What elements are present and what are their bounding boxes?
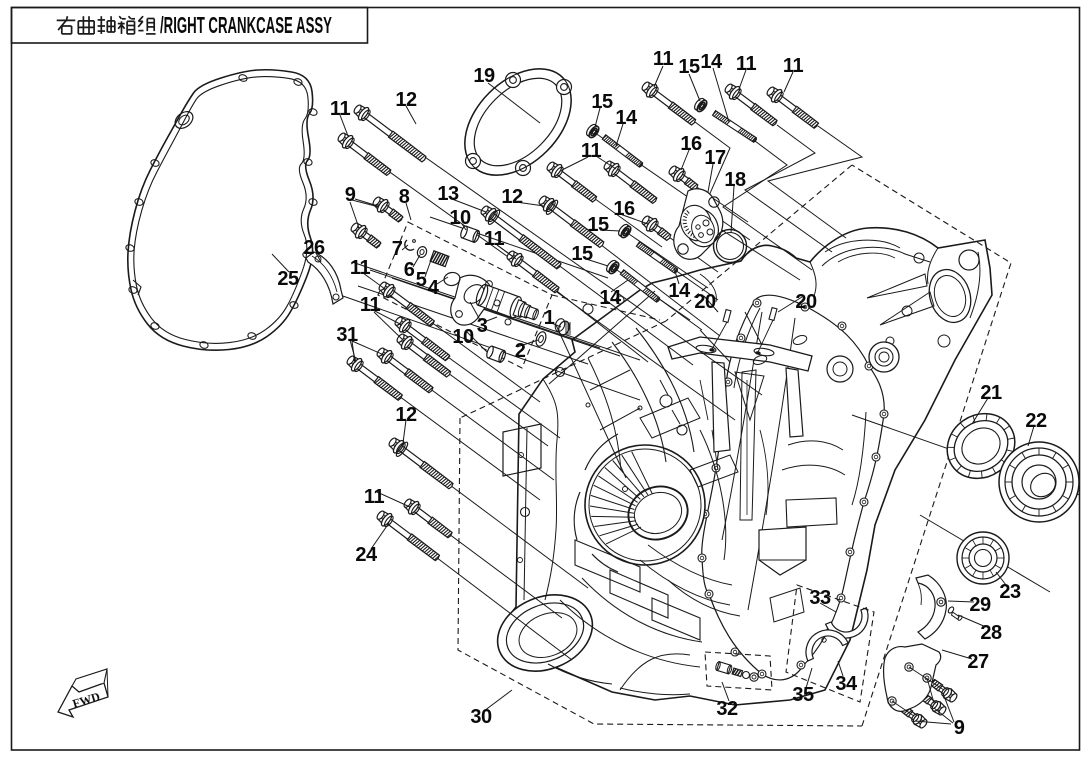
- svg-text:18: 18: [724, 169, 746, 191]
- svg-text:22: 22: [1025, 410, 1047, 432]
- svg-text:25: 25: [277, 268, 299, 290]
- svg-text:30: 30: [470, 706, 492, 728]
- svg-text:29: 29: [969, 594, 991, 616]
- svg-text:6: 6: [404, 259, 415, 281]
- svg-text:20: 20: [795, 291, 817, 313]
- svg-text:20: 20: [694, 291, 716, 313]
- svg-text:3: 3: [477, 315, 488, 337]
- svg-text:15: 15: [571, 243, 593, 265]
- svg-text:15: 15: [678, 56, 700, 78]
- svg-text:2: 2: [515, 340, 526, 362]
- svg-text:11: 11: [350, 257, 371, 279]
- svg-text:11: 11: [653, 48, 674, 70]
- svg-text:15: 15: [591, 91, 613, 113]
- svg-text:12: 12: [395, 89, 417, 111]
- svg-text:11: 11: [484, 228, 505, 250]
- svg-text:17: 17: [704, 147, 726, 169]
- svg-text:9: 9: [954, 717, 965, 739]
- svg-text:11: 11: [330, 98, 351, 120]
- svg-text:34: 34: [835, 673, 858, 695]
- svg-text:5: 5: [416, 269, 427, 291]
- svg-text:33: 33: [809, 587, 831, 609]
- svg-text:12: 12: [501, 186, 523, 208]
- svg-text:27: 27: [967, 651, 989, 673]
- svg-text:32: 32: [716, 698, 738, 720]
- svg-text:15: 15: [587, 214, 609, 236]
- svg-text:35: 35: [792, 684, 814, 706]
- svg-text:13: 13: [437, 183, 459, 205]
- svg-text:14: 14: [599, 287, 622, 309]
- svg-text:21: 21: [980, 382, 1002, 404]
- svg-text:16: 16: [613, 198, 635, 220]
- svg-text:19: 19: [473, 65, 495, 87]
- svg-text:1: 1: [544, 307, 555, 329]
- svg-text:28: 28: [980, 622, 1002, 644]
- svg-text:11: 11: [736, 53, 757, 75]
- svg-text:23: 23: [999, 581, 1021, 603]
- svg-text:7: 7: [392, 238, 403, 260]
- svg-text:10: 10: [452, 326, 474, 348]
- svg-text:12: 12: [395, 404, 417, 426]
- svg-text:10: 10: [449, 207, 471, 229]
- svg-text:14: 14: [615, 107, 638, 129]
- svg-text:11: 11: [783, 55, 804, 77]
- svg-text:4: 4: [428, 277, 440, 299]
- svg-text:26: 26: [303, 237, 325, 259]
- svg-text:9: 9: [345, 184, 356, 206]
- svg-text:11: 11: [364, 486, 385, 508]
- svg-text:/RIGHT CRANKCASE ASSY: /RIGHT CRANKCASE ASSY: [160, 12, 332, 38]
- svg-text:14: 14: [700, 51, 723, 73]
- svg-text:11: 11: [360, 294, 381, 316]
- svg-text:8: 8: [399, 186, 410, 208]
- svg-text:24: 24: [355, 544, 378, 566]
- svg-text:16: 16: [680, 133, 702, 155]
- svg-text:14: 14: [668, 280, 691, 302]
- svg-text:31: 31: [336, 324, 358, 346]
- svg-text:11: 11: [581, 140, 602, 162]
